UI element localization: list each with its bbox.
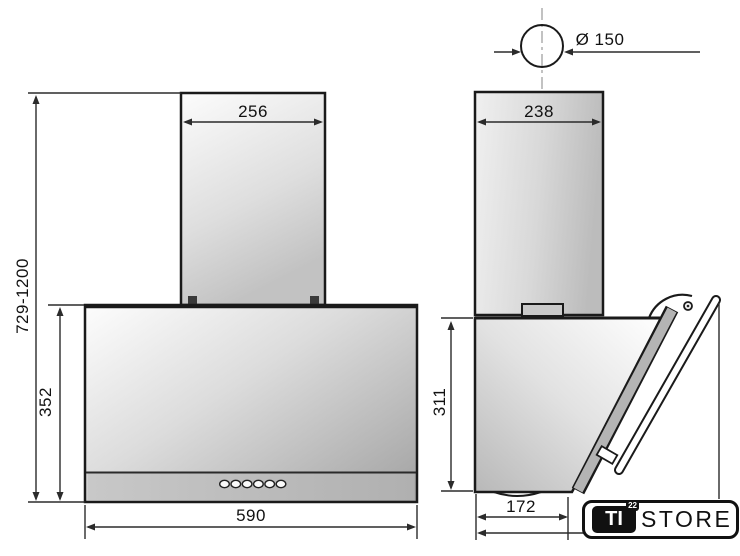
ti-logo-name: STORE bbox=[641, 506, 732, 533]
ti-store-logo: TI 22 STORE bbox=[582, 500, 739, 539]
dim-front-chimney-width: 256 bbox=[238, 102, 268, 122]
side-chimney bbox=[475, 92, 603, 315]
hinge-pivot-center bbox=[687, 305, 690, 308]
ti-logo-prefix: TI bbox=[605, 508, 623, 531]
dim-duct-diameter: Ø 150 bbox=[576, 30, 625, 50]
dim-front-body-height: 352 bbox=[36, 387, 56, 417]
drawing-linework bbox=[0, 0, 740, 556]
front-chimney-tab-right bbox=[310, 296, 319, 304]
front-view bbox=[85, 93, 417, 502]
front-chimney bbox=[181, 93, 325, 305]
side-hood-body bbox=[475, 318, 662, 492]
dim-total-height-range: 729-1200 bbox=[13, 258, 33, 334]
dim-side-body-depth: 172 bbox=[506, 497, 536, 517]
dim-front-body-width: 590 bbox=[236, 506, 266, 526]
ti-logo-superscript: 22 bbox=[626, 500, 639, 511]
side-chimney-tab bbox=[522, 304, 563, 316]
hood-dimension-drawing: 256 238 Ø 150 729-1200 352 311 590 172 T… bbox=[0, 0, 740, 556]
dim-side-chimney-depth: 238 bbox=[524, 102, 554, 122]
ti-logo-box: TI 22 bbox=[592, 506, 636, 533]
side-view bbox=[475, 92, 716, 496]
front-chimney-tab-left bbox=[188, 296, 197, 304]
dim-side-body-height: 311 bbox=[430, 388, 450, 417]
